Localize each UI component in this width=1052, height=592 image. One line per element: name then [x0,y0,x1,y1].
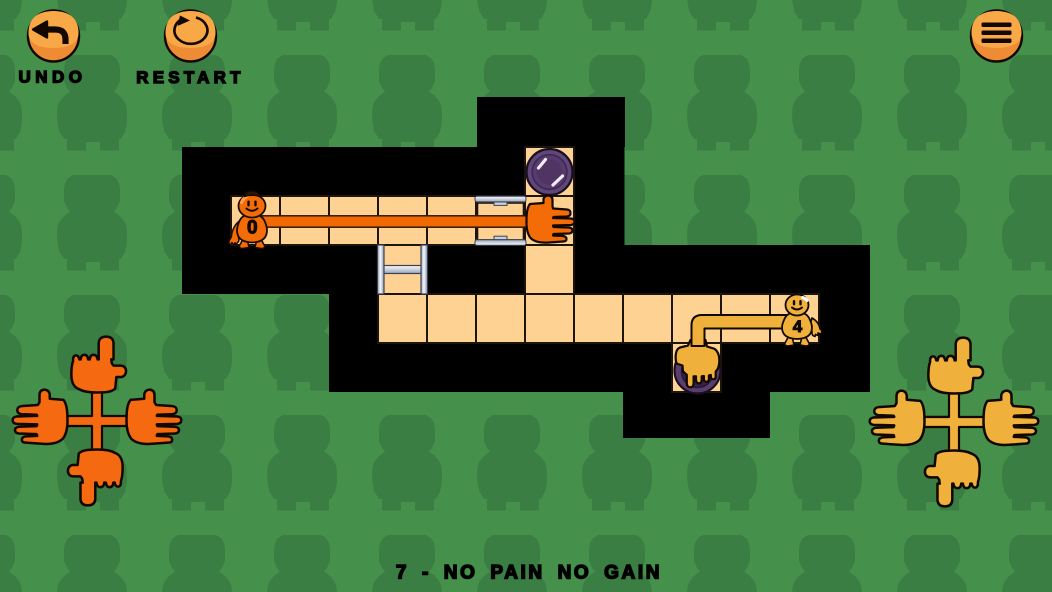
svg-text:0: 0 [247,218,258,239]
svg-text:4: 4 [793,317,803,336]
svg-text:UNDO: UNDO [18,68,86,87]
svg-text:RESTART: RESTART [136,68,244,87]
svg-text:7 - NO PAIN NO GAIN: 7 - NO PAIN NO GAIN [396,563,662,584]
